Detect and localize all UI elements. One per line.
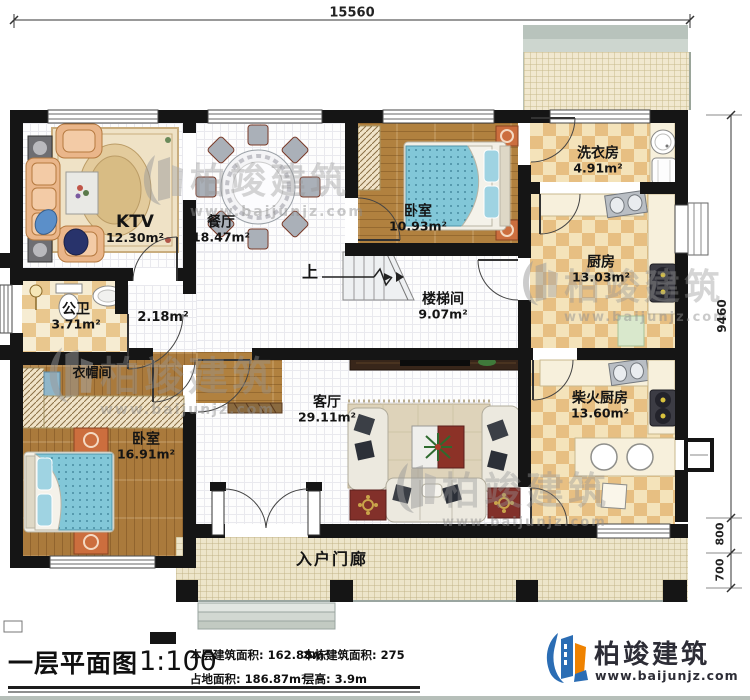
porch-column — [663, 580, 687, 602]
window — [383, 110, 494, 123]
pillow — [37, 458, 52, 490]
entry-steps — [198, 603, 335, 629]
window — [550, 110, 650, 123]
sink — [609, 358, 650, 385]
room-label-living: 客厅 29.11m² — [298, 396, 356, 425]
dim-right: 9460 — [715, 299, 729, 332]
dim-porch: 800 — [714, 523, 727, 546]
window — [50, 556, 155, 568]
door-firewood-bottom — [531, 488, 567, 524]
room-label-porch: 入户门廊 — [296, 550, 368, 567]
dim-step: 700 — [714, 559, 727, 582]
wood-stove-pot — [591, 444, 617, 470]
door-kitchen — [478, 260, 518, 300]
room-label-bathroom: 公卫 3.71m² — [51, 303, 100, 332]
brand-url: www.baijunjz.com — [595, 668, 739, 683]
porch-structure — [4, 580, 688, 632]
dim-top: 15560 — [329, 6, 374, 21]
porch-column — [516, 580, 538, 602]
sofa-pillow-light — [422, 484, 442, 497]
window — [597, 524, 670, 538]
porch-column — [330, 580, 353, 602]
end-table — [488, 488, 520, 518]
nightstand — [74, 530, 108, 554]
pillow — [37, 494, 52, 526]
floor-height: 层高: 3.9m — [303, 671, 367, 687]
laundry-fixtures — [650, 120, 676, 188]
shower-head — [30, 285, 42, 297]
toilet-tank — [56, 284, 82, 293]
staircase — [322, 252, 414, 300]
bay-window — [0, 285, 12, 333]
end-table — [350, 490, 386, 520]
kitchen-window — [675, 203, 708, 255]
sofa-right — [482, 406, 520, 492]
stool — [601, 483, 627, 509]
pillow — [484, 150, 499, 182]
person-figure — [64, 229, 88, 255]
room-label-corridor: 2.18m² — [137, 311, 188, 325]
plan-edge-mark — [4, 621, 22, 632]
room-label-stairwell: 楼梯间 9.07m² — [418, 293, 467, 322]
room-label-kitchen: 厨房 13.03m² — [572, 256, 630, 285]
title-rules — [0, 686, 750, 700]
plan-drawing — [0, 0, 750, 700]
room-label-laundry: 洗衣房 4.91m² — [573, 147, 622, 176]
entrance-double-door — [210, 482, 322, 535]
washing-machine — [652, 158, 676, 184]
firewood-kitchen-fixtures — [540, 358, 676, 508]
porch-column — [176, 580, 198, 602]
kitchen-table — [618, 316, 644, 346]
floorplan-canvas: 柏竣建筑 www.baijunjz.com 柏竣建筑 www.baijunjz.… — [0, 0, 750, 700]
sofa-pillow — [355, 440, 375, 460]
site-area: 占地面积: 186.87m² — [190, 671, 306, 687]
threshold — [228, 403, 282, 413]
room-label-bedroom1: 卧室 16.91m² — [117, 433, 175, 462]
brand-logo-icon — [547, 633, 588, 683]
nightstand — [74, 428, 108, 452]
stairs-up-label: 上 — [302, 263, 318, 280]
wood-stove-pot — [627, 444, 653, 470]
room-label-ktv: KTV 12.30m² — [106, 213, 164, 245]
drawing-title: 一层平面图 — [8, 644, 138, 680]
ktv-coffee-table — [66, 172, 98, 214]
flue-bay — [686, 440, 712, 470]
brand-name: 柏竣建筑 — [594, 634, 710, 671]
window — [48, 110, 158, 123]
room-label-cloakroom: 衣帽间 — [72, 367, 111, 381]
wood-stove-counter — [575, 438, 675, 476]
room-label-firewood: 柴火厨房 13.60m² — [571, 392, 629, 421]
room-label-bedroom2: 卧室 10.93m² — [389, 205, 447, 234]
total-area: 本栋建筑面积: 275 — [303, 647, 405, 663]
room-label-dining: 餐厅 18.47m² — [192, 216, 250, 245]
door-laundry — [531, 118, 575, 162]
living-furniture — [348, 401, 520, 522]
window — [208, 110, 322, 123]
pillow — [484, 186, 499, 218]
